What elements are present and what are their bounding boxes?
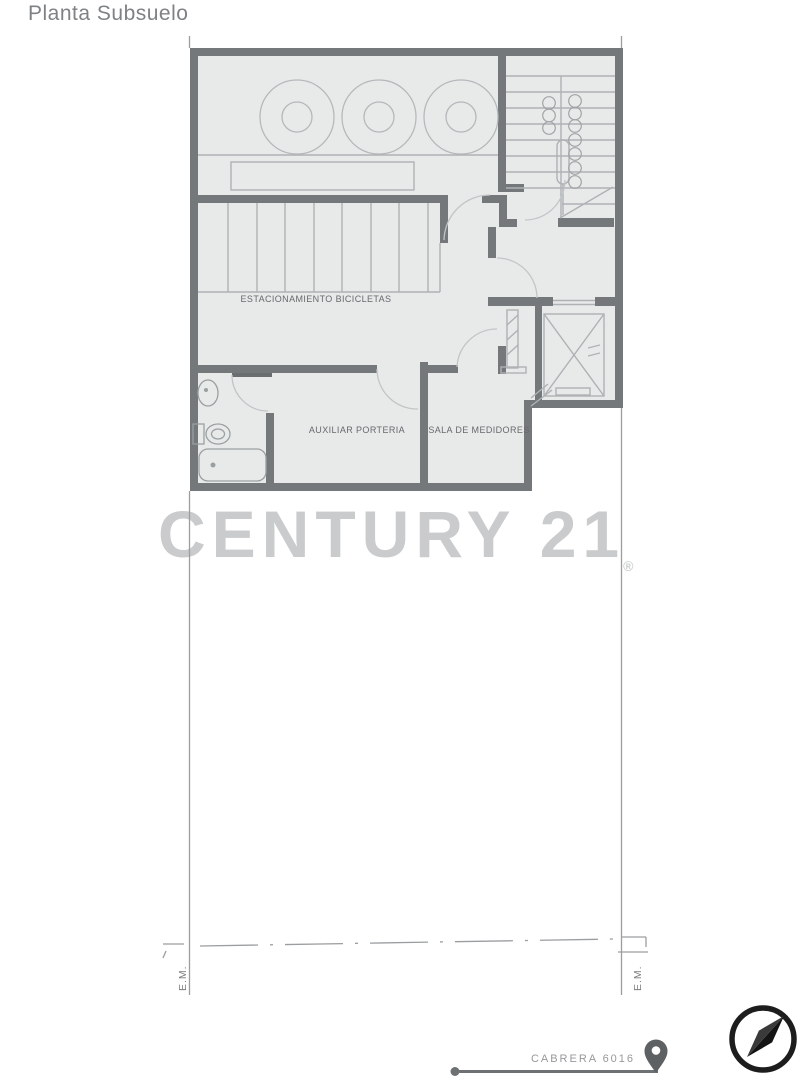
- room-label-sala-de-medidores: SALA DE MEDIDORES: [428, 425, 529, 435]
- floorplan-page: Planta Subsuelo CENTURY 21®: [0, 0, 809, 1080]
- room-label-auxiliar-porteria: AUXILIAR PORTERIA: [309, 425, 405, 435]
- boundary-mark-right: E.M.: [632, 965, 644, 991]
- street-label: CABRERA 6016: [531, 1053, 635, 1065]
- compass-icon: [732, 1008, 794, 1070]
- floorplan-drawing: ESTACIONAMIENTO BICICLETAS: [0, 0, 809, 1080]
- map-pin-icon: [645, 1040, 668, 1074]
- boundary-mark-left: E.M.: [177, 965, 189, 991]
- street-reference: CABRERA 6016: [451, 1040, 668, 1077]
- room-label-estacionamiento-bicicletas: ESTACIONAMIENTO BICICLETAS: [241, 294, 392, 304]
